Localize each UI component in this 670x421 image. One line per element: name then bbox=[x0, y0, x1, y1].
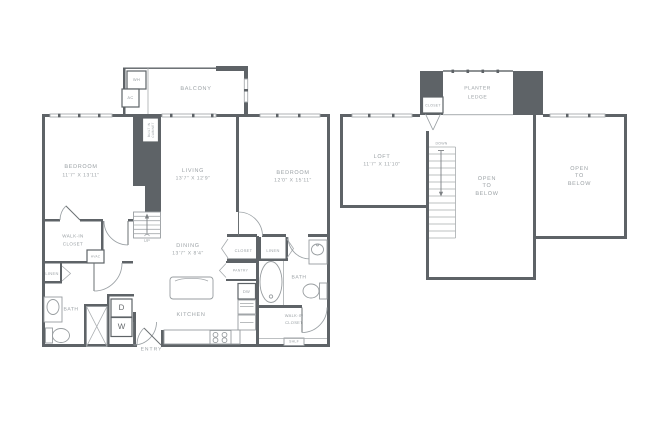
bedroom-left-dims: 11'7" X 13'11" bbox=[62, 172, 99, 180]
washer-label: W bbox=[118, 321, 126, 333]
dishwasher-label: DW bbox=[243, 289, 250, 295]
bath-right-label: BATH bbox=[292, 274, 307, 282]
stove bbox=[210, 331, 231, 345]
living-dims: 13'7" X 12'9" bbox=[176, 175, 211, 183]
linen-right-label: LINEN bbox=[266, 248, 279, 254]
open-to-below-right-label: OPEN TO BELOW bbox=[568, 166, 591, 188]
shelf-label: SHLF bbox=[289, 339, 299, 344]
bedroom-right-dims: 12'0" X 15'11" bbox=[274, 177, 312, 185]
water-heater-label: WH bbox=[133, 77, 140, 83]
vanity-left bbox=[44, 297, 62, 322]
floorplan-page: BALCONY WH AC BUILT IN CABINET BEDROOM 1… bbox=[0, 0, 670, 421]
bedroom-right-name: BEDROOM bbox=[276, 168, 309, 176]
stairs-down-label: DOWN bbox=[435, 141, 447, 146]
closet-label: CLOSET bbox=[235, 248, 253, 254]
floor1-stairs bbox=[134, 212, 161, 238]
bath-right-door bbox=[288, 237, 310, 259]
pantry-label: PANTRY bbox=[233, 268, 248, 273]
floorplan-svg bbox=[0, 0, 670, 421]
floor1-walls bbox=[42, 66, 330, 347]
living-name: LIVING bbox=[182, 166, 204, 174]
toilet-left-bowl bbox=[53, 329, 70, 343]
kitchen-label: KITCHEN bbox=[176, 311, 205, 319]
planter-ledge-label: PLANTER LEDGE bbox=[464, 85, 491, 102]
dining-dims: 13'7" X 8'4" bbox=[172, 250, 203, 258]
dining-name: DINING bbox=[176, 241, 199, 249]
toilet-right-tank bbox=[320, 283, 328, 299]
balcony-label: BALCONY bbox=[180, 85, 211, 93]
loft-closet-door bbox=[426, 114, 434, 130]
linen-left-bifold bbox=[62, 266, 71, 281]
floor2-stairs bbox=[429, 147, 456, 238]
bath-left-label: BATH bbox=[64, 306, 79, 314]
toilet-left-tank bbox=[46, 328, 53, 343]
linen-left-label: LINEN bbox=[45, 271, 58, 277]
closet-left-door bbox=[66, 206, 80, 220]
open-to-below-middle-label: OPEN TO BELOW bbox=[475, 176, 498, 198]
loft-closet-label: CLOSET bbox=[425, 103, 441, 108]
loft-dims: 11'7" X 11'10" bbox=[363, 161, 400, 169]
walk-in-closet-left-label: WALK-IN CLOSET bbox=[62, 232, 83, 247]
stairs-up-label: UP bbox=[144, 238, 150, 244]
entry-door bbox=[144, 328, 161, 345]
bedroom-left-name: BEDROOM bbox=[64, 163, 97, 171]
dryer-label: D bbox=[119, 302, 125, 314]
toilet-right-bowl bbox=[303, 284, 319, 298]
walk-in-closet-right-label: WALK-IN CLOSET bbox=[285, 313, 304, 327]
closet-bifold bbox=[222, 239, 229, 258]
ac-label: AC bbox=[127, 95, 133, 101]
hvac-label: HVAC bbox=[91, 254, 100, 259]
built-in-cabinet-label: BUILT IN CABINET bbox=[146, 122, 154, 137]
oven-box bbox=[238, 300, 256, 314]
entry-label: ENTRY bbox=[141, 346, 163, 354]
tub bbox=[260, 262, 282, 303]
pantry-bifold bbox=[220, 264, 227, 278]
